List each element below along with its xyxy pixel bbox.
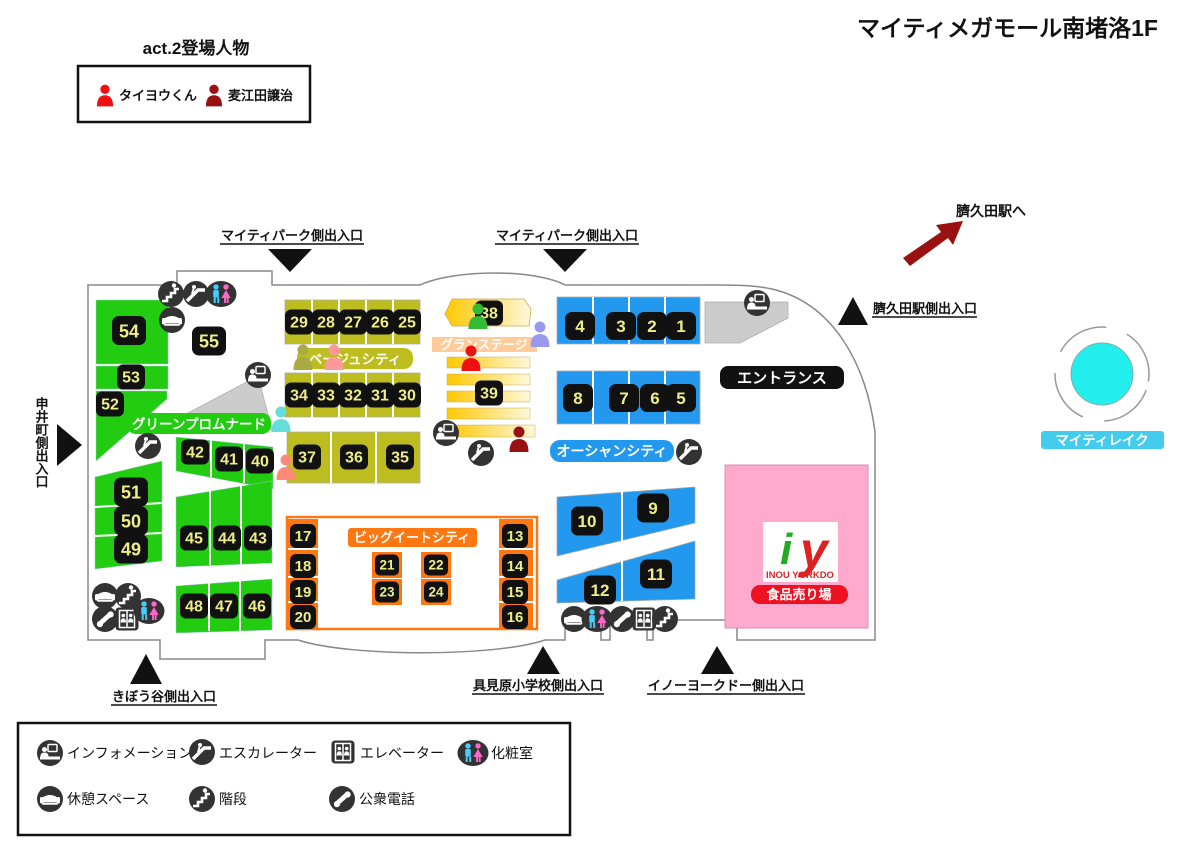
svg-text:28: 28 [317, 315, 335, 332]
svg-text:30: 30 [398, 388, 416, 405]
shop-54: 54 [112, 316, 146, 345]
shop-1: 1 [666, 312, 696, 340]
shop-37: 37 [293, 445, 321, 470]
shop-52: 52 [96, 392, 124, 417]
exit-triangle-icon [57, 424, 82, 466]
exit-triangle-icon [130, 654, 162, 684]
exit-label: マイティパーク側出入口 [496, 228, 638, 243]
svg-text:1: 1 [676, 317, 685, 336]
shop-46: 46 [243, 594, 271, 619]
svg-text:35: 35 [391, 450, 409, 467]
shop-44: 44 [213, 526, 241, 551]
restroom-icon [206, 281, 237, 307]
svg-text:31: 31 [371, 388, 389, 405]
cast-heading: act.2登場人物 [143, 38, 250, 58]
entrance-sign: エントランス [720, 366, 844, 389]
svg-text:13: 13 [507, 528, 524, 545]
legend-information-label: インフォメーション [67, 745, 192, 761]
shop-8: 8 [563, 384, 593, 412]
svg-text:45: 45 [185, 531, 203, 548]
svg-text:33: 33 [317, 388, 335, 405]
escalator-icon [676, 439, 702, 465]
shop-19: 19 [290, 580, 316, 604]
svg-text:27: 27 [344, 315, 362, 332]
shop-32: 32 [339, 383, 367, 408]
escalator-icon [183, 281, 209, 307]
svg-text:32: 32 [344, 388, 362, 405]
legend-escalator-label: エスカレーター [219, 745, 317, 761]
svg-text:19: 19 [295, 584, 312, 601]
station-arrow-icon [903, 221, 963, 266]
rest-space-icon [92, 583, 118, 609]
legend-restroom-label: 化粧室 [491, 745, 533, 761]
escalator-icon [189, 739, 215, 765]
information-icon [744, 290, 770, 316]
svg-text:25: 25 [398, 315, 416, 332]
svg-text:41: 41 [220, 452, 238, 469]
exit-gumihara: 具見原小学校側出入口 [472, 646, 604, 694]
svg-text:3: 3 [616, 317, 625, 336]
exit-label: マイティパーク側出入口 [221, 228, 363, 243]
svg-text:53: 53 [122, 370, 140, 387]
svg-text:18: 18 [295, 558, 312, 575]
restroom-icon [582, 606, 613, 632]
shop-43: 43 [244, 526, 272, 551]
shop-3: 3 [606, 312, 636, 340]
svg-text:48: 48 [185, 599, 203, 616]
svg-text:26: 26 [371, 315, 389, 332]
mighty-lake: マイティレイク [1041, 314, 1164, 449]
shop-40: 40 [246, 449, 274, 474]
svg-text:54: 54 [119, 322, 139, 342]
exit-mighty-park-2: マイティパーク側出入口 [495, 228, 639, 272]
shop-2: 2 [637, 312, 667, 340]
shop-28: 28 [312, 310, 340, 335]
stairs-icon [158, 281, 184, 307]
shop-4: 4 [565, 312, 595, 340]
svg-text:23: 23 [379, 585, 395, 600]
svg-text:36: 36 [345, 450, 363, 467]
exit-kibodani: きぼう谷側出入口 [111, 654, 217, 705]
zone-inou-yorkdo: i y INOU YORKDO 食品売り場 [725, 465, 868, 628]
exit-triangle-icon [527, 646, 560, 674]
exit-label: 具見原小学校側出入口 [473, 678, 603, 693]
legend-elevator-label: エレベーター [360, 745, 444, 761]
exit-inou-yorkdo: イノーヨークドー側出入口 [647, 646, 805, 694]
shop-39: 39 [475, 381, 503, 406]
shop-5: 5 [666, 384, 696, 412]
shop-47: 47 [210, 594, 238, 619]
entrance-label: エントランス [737, 370, 827, 387]
svg-text:17: 17 [295, 528, 312, 545]
shop-51: 51 [114, 478, 148, 507]
exit-label: 申井町側出入口 [34, 396, 50, 488]
legend-rest-space-label: 休憩スペース [67, 791, 149, 807]
exit-label: 臍久田駅側出入口 [873, 301, 977, 316]
shop-33: 33 [312, 383, 340, 408]
shop-25: 25 [393, 310, 421, 335]
shop-50: 50 [114, 507, 148, 536]
page-title: マイティメガモール南堵洛1F [857, 15, 1158, 41]
exit-mighty-park-1: マイティパーク側出入口 [220, 228, 364, 272]
shop-35: 35 [386, 445, 414, 470]
svg-text:7: 7 [619, 389, 628, 408]
svg-text:6: 6 [650, 389, 659, 408]
exit-label: イノーヨークドー側出入口 [648, 678, 804, 693]
ocean-city-banner-label: オーシャンシティ [557, 443, 668, 459]
public-phone-icon [92, 606, 118, 632]
svg-text:22: 22 [428, 558, 443, 573]
shop-22: 22 [424, 555, 448, 576]
information-icon [37, 740, 63, 766]
shop-12: 12 [584, 576, 616, 605]
cast-panel: タイヨウくん 麦江田譲治 [78, 66, 310, 122]
shop-6: 6 [640, 384, 670, 412]
svg-text:2: 2 [647, 317, 656, 336]
rest-space-icon [159, 307, 185, 333]
svg-text:20: 20 [295, 609, 312, 626]
escalator-icon [135, 433, 161, 459]
mighty-lake-label: マイティレイク [1055, 433, 1148, 448]
svg-text:42: 42 [186, 445, 204, 462]
stairs-icon [652, 606, 678, 632]
shop-31: 31 [366, 383, 394, 408]
public-phone-icon [609, 606, 635, 632]
zone-big-eat-city: ビッグイートシティ [287, 517, 537, 629]
shop-area-43-45 [176, 481, 272, 567]
svg-text:14: 14 [507, 558, 524, 575]
legend-panel: インフォメーション エスカレーター エレベーター 化粧室 休憩スペース 階段 公… [18, 723, 570, 835]
shop-41: 41 [215, 447, 243, 472]
to-station-label: 臍久田駅へ [956, 203, 1026, 219]
logo-i-glyph: i [780, 525, 793, 574]
shop-49: 49 [114, 535, 148, 564]
svg-text:37: 37 [298, 450, 316, 467]
shop-45: 45 [180, 526, 208, 551]
food-dept-label: 食品売り場 [766, 587, 831, 602]
svg-text:16: 16 [507, 609, 524, 626]
beige-city-banner-label: ベージュシティ [309, 352, 401, 367]
stairs-icon [189, 786, 215, 812]
exit-triangle-icon [701, 646, 734, 674]
exit-hesokuda-station: 臍久田駅側出入口 [838, 297, 977, 325]
legend-stairs-label: 階段 [219, 791, 247, 807]
shop-10: 10 [571, 507, 603, 536]
escalator-icon [468, 440, 494, 466]
shop-11: 11 [640, 560, 672, 589]
shop-16: 16 [502, 605, 528, 629]
shop-48: 48 [180, 594, 208, 619]
svg-text:55: 55 [199, 332, 219, 352]
shop-20: 20 [290, 605, 316, 629]
shop-30: 30 [393, 383, 421, 408]
legend-phone-label: 公衆電話 [359, 791, 415, 807]
big-eat-city-banner-label: ビッグイートシティ [354, 530, 470, 545]
store-name: INOU YORKDO [766, 570, 834, 581]
svg-text:10: 10 [578, 512, 597, 531]
svg-text:44: 44 [218, 531, 236, 548]
svg-text:43: 43 [249, 531, 267, 548]
shop-15: 15 [502, 580, 528, 604]
svg-text:51: 51 [121, 483, 141, 503]
public-phone-icon [329, 786, 355, 812]
shop-53: 53 [117, 365, 145, 390]
information-icon [245, 362, 271, 388]
exit-triangle-icon [268, 249, 312, 272]
shop-24: 24 [424, 582, 448, 603]
svg-text:4: 4 [575, 317, 585, 336]
shop-27: 27 [339, 310, 367, 335]
svg-text:21: 21 [379, 558, 395, 573]
shop-13: 13 [502, 524, 528, 548]
svg-text:39: 39 [480, 386, 498, 403]
svg-text:50: 50 [121, 512, 141, 532]
svg-text:52: 52 [101, 397, 119, 414]
shop-9: 9 [637, 494, 669, 523]
svg-text:34: 34 [290, 388, 308, 405]
exit-saruicho: 申井町側出入口 [34, 396, 83, 488]
shop-34: 34 [285, 383, 313, 408]
svg-text:24: 24 [428, 585, 444, 600]
svg-text:12: 12 [591, 581, 610, 600]
lake-circle [1071, 343, 1133, 405]
elevator-icon [332, 741, 355, 764]
svg-text:29: 29 [290, 315, 308, 332]
svg-text:47: 47 [215, 599, 233, 616]
shop-26: 26 [366, 310, 394, 335]
cast-member1-name: タイヨウくん [119, 88, 197, 103]
svg-text:46: 46 [248, 599, 266, 616]
shop-18: 18 [290, 554, 316, 578]
shop-36: 36 [340, 445, 368, 470]
rest-space-icon [37, 786, 63, 812]
svg-text:9: 9 [648, 499, 657, 518]
exit-label: きぼう谷側出入口 [112, 689, 216, 704]
mall-floor-map: マイティメガモール南堵洛1F act.2登場人物 タイヨウくん 麦江田譲治 臍久… [0, 0, 1191, 842]
shop-55: 55 [192, 327, 226, 356]
shop-14: 14 [502, 554, 528, 578]
shop-17: 17 [290, 524, 316, 548]
svg-text:49: 49 [121, 540, 141, 560]
exit-triangle-icon [543, 249, 587, 272]
restroom-icon [458, 740, 489, 766]
cast-member2-name: 麦江田譲治 [228, 88, 293, 103]
svg-text:5: 5 [676, 389, 685, 408]
svg-text:8: 8 [573, 389, 582, 408]
shop-21: 21 [375, 555, 399, 576]
svg-text:11: 11 [647, 565, 665, 584]
person-lavender-icon [531, 322, 550, 348]
green-promenade-banner-label: グリーンプロムナード [132, 416, 266, 432]
shop-42: 42 [181, 440, 209, 465]
information-icon [433, 420, 459, 446]
shop-29: 29 [285, 310, 313, 335]
restroom-icon [134, 598, 165, 624]
svg-text:40: 40 [251, 454, 269, 471]
grand-stage-banner-label: グランステージ [440, 337, 528, 352]
shop-23: 23 [375, 582, 399, 603]
svg-text:15: 15 [507, 584, 524, 601]
exit-triangle-icon [838, 297, 868, 325]
shop-7: 7 [609, 384, 639, 412]
